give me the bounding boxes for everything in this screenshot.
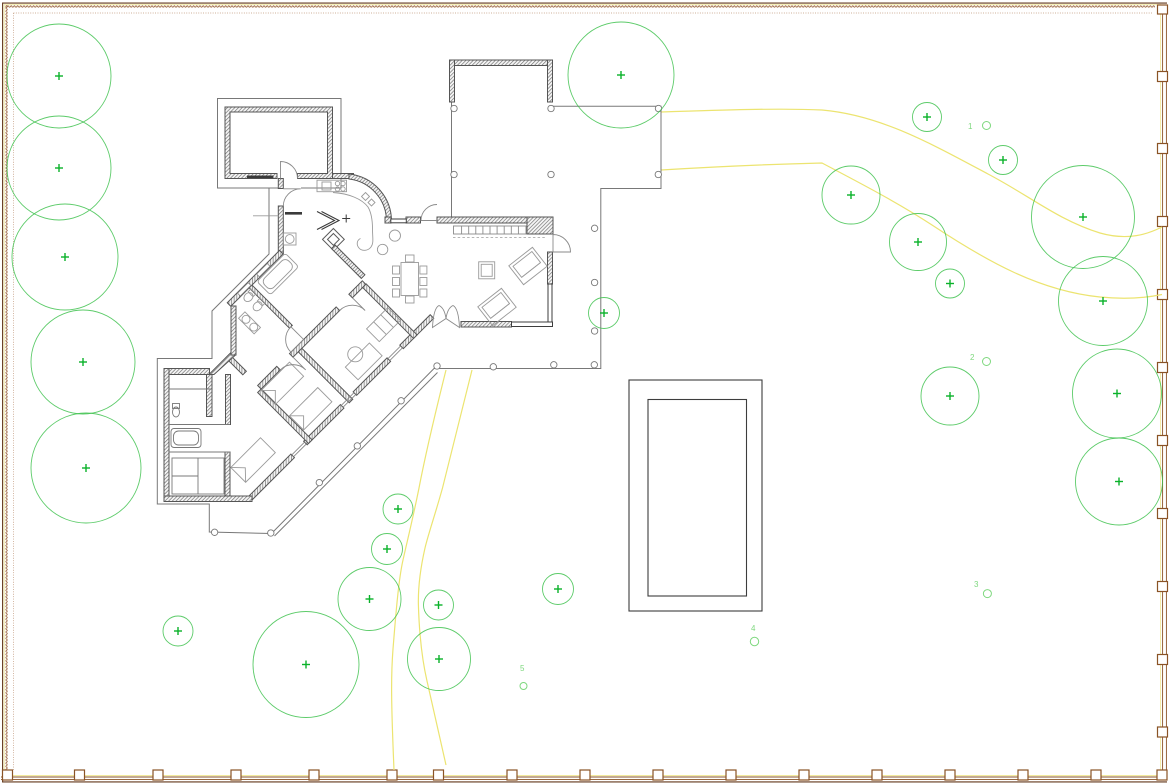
svg-text:3: 3 xyxy=(974,580,979,589)
svg-text:5: 5 xyxy=(520,664,525,673)
svg-text:4: 4 xyxy=(751,624,756,633)
svg-text:2: 2 xyxy=(970,353,975,362)
svg-text:1: 1 xyxy=(968,122,973,131)
